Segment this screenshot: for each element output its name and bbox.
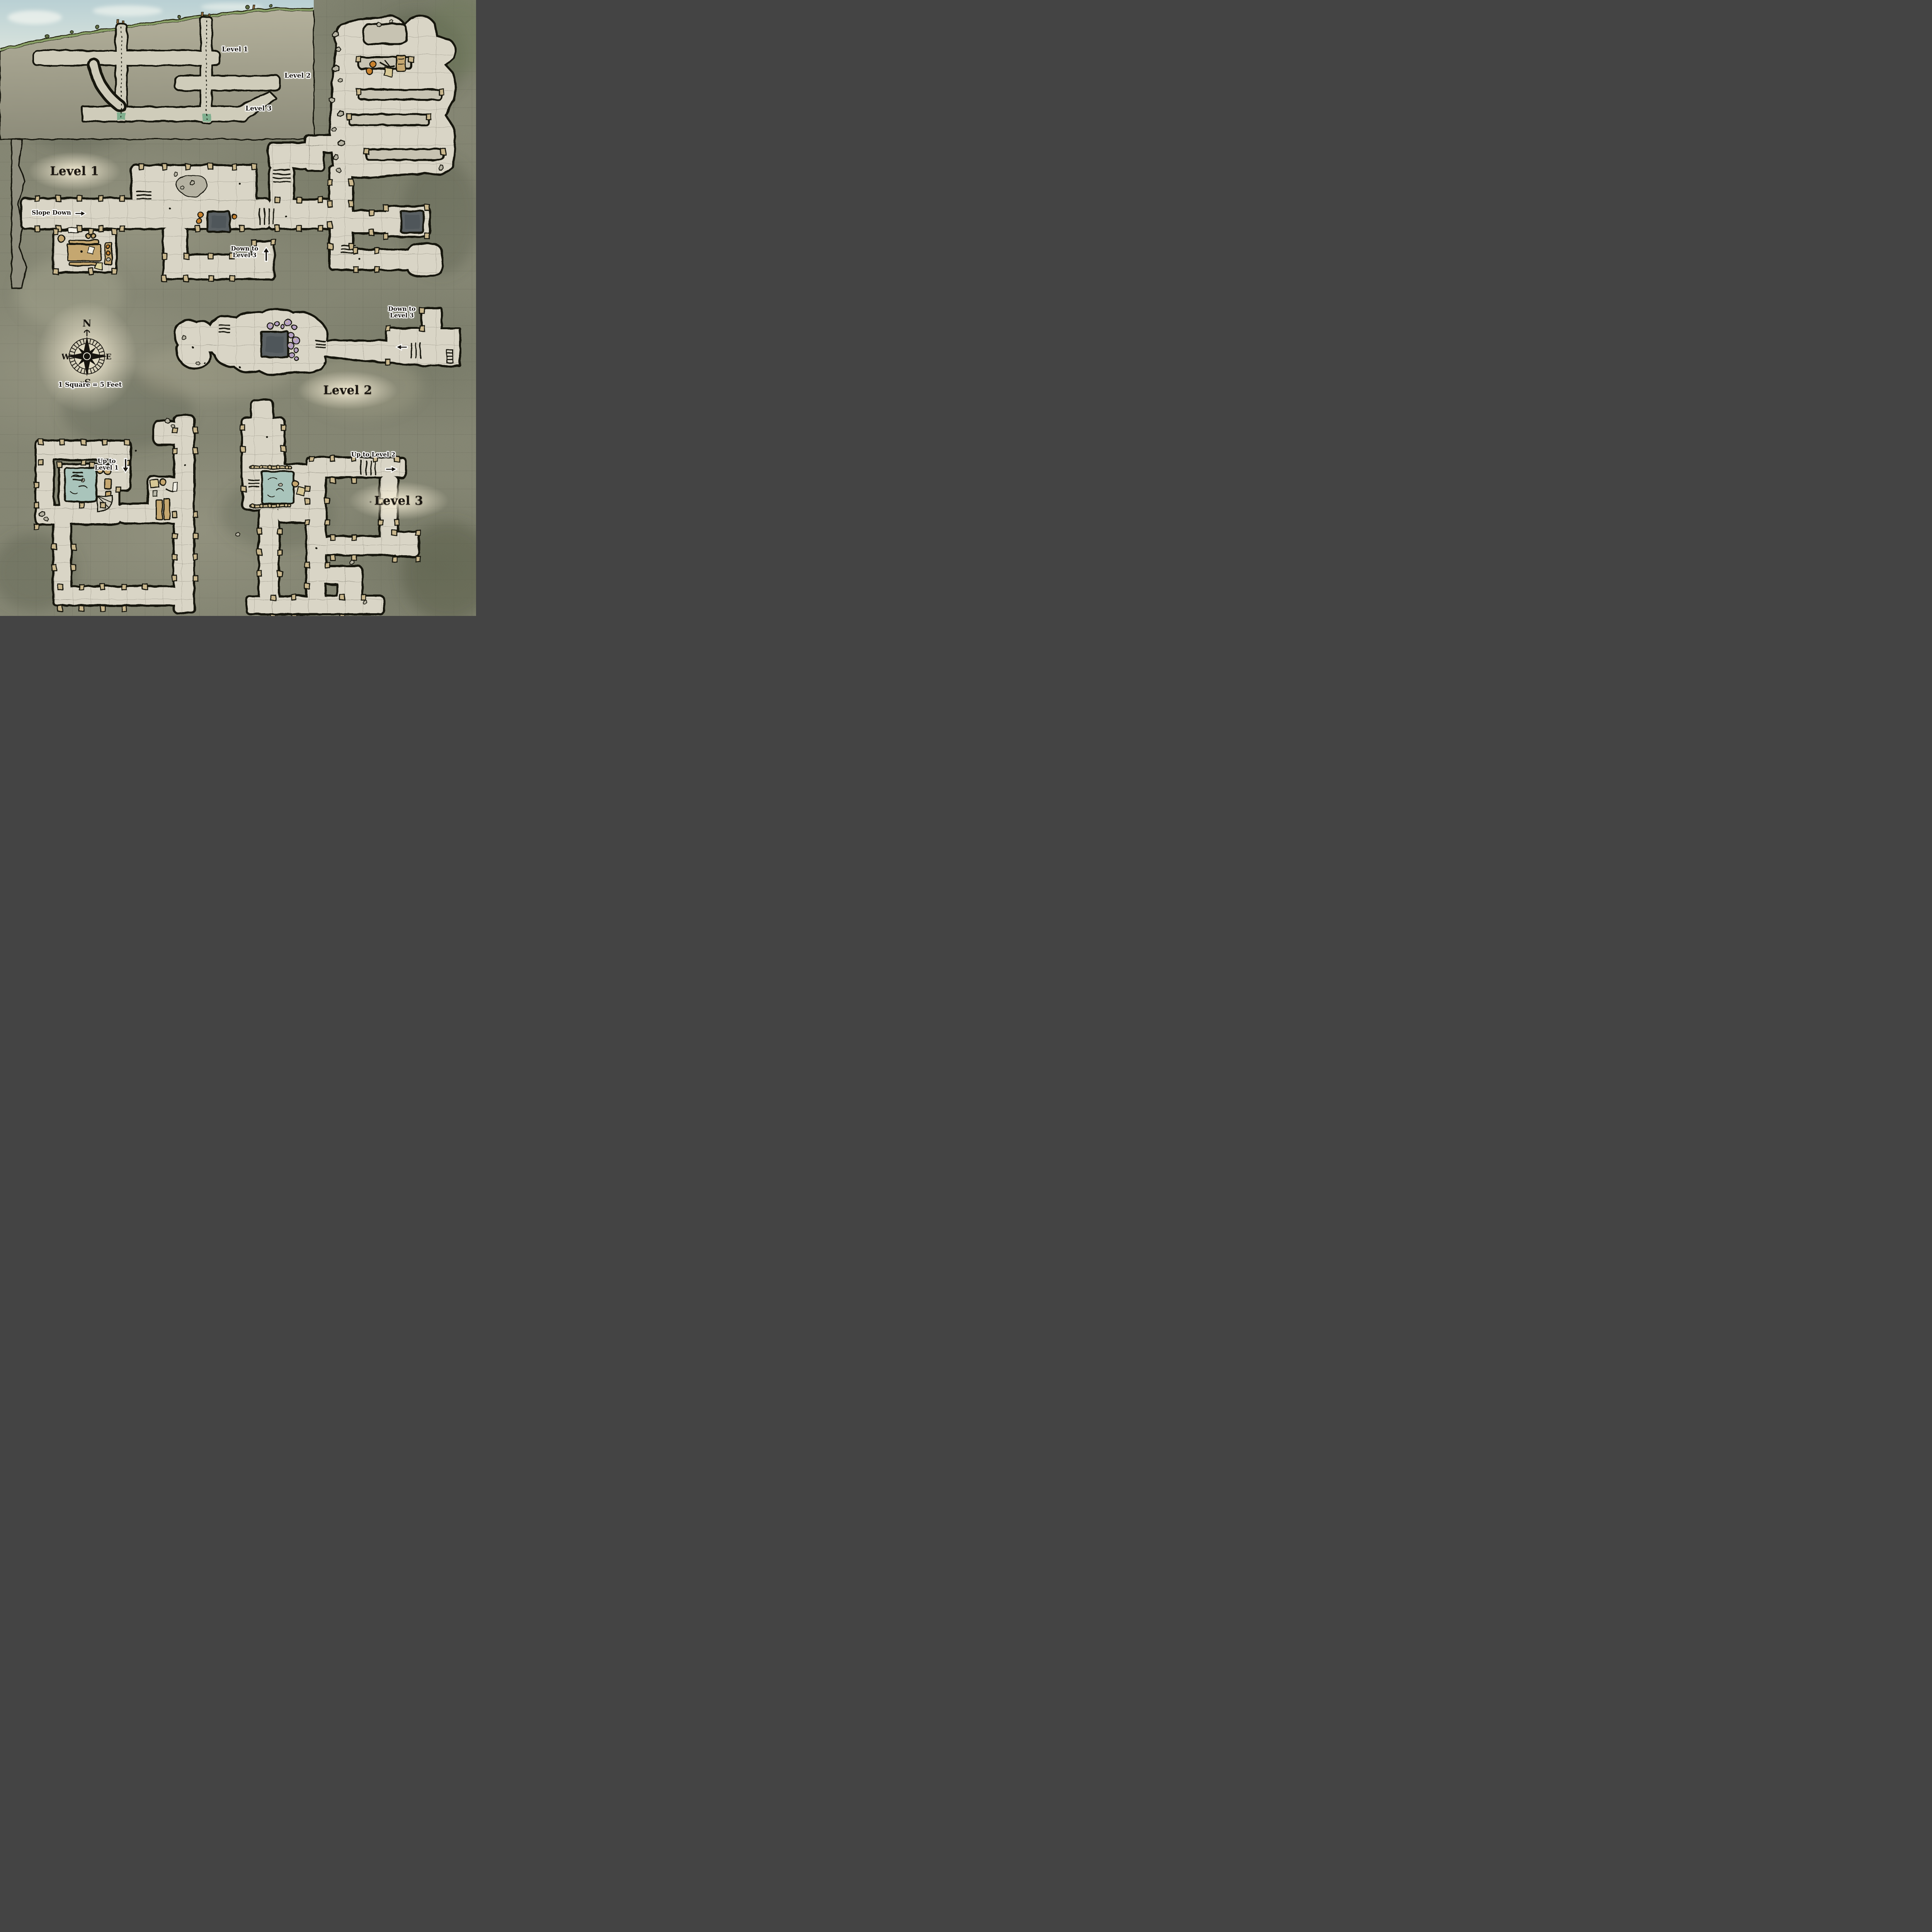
level3-title: Level 3	[374, 494, 423, 508]
level2-title: Level 2	[323, 383, 372, 397]
cross-section-view	[0, 0, 314, 139]
spool-icon	[198, 212, 203, 218]
cross-section-level3-label: Level 3	[245, 105, 272, 112]
crate-icon	[95, 262, 103, 270]
compass-east-label: E	[105, 352, 111, 361]
level1-title: Level 1	[50, 164, 99, 178]
up-to-level2-right-arrow-icon	[385, 465, 398, 473]
level3-up-to-level2-label: Up to Level 2	[351, 452, 395, 458]
up-to-level1-down-arrow-icon	[121, 458, 130, 473]
level2-down-to-level3-label: Down toLevel 3	[388, 306, 415, 318]
slope-down-right-arrow-icon	[74, 210, 87, 217]
level3-up-to-level1-label: Up toLevel 1	[95, 458, 119, 471]
compass-north-label: N	[82, 320, 92, 329]
spool-icon	[232, 214, 236, 219]
down-to-level3-left-arrow-icon	[395, 343, 408, 351]
mine-dungeon-map: N W E M S Level 1 Level 2 Level 3 Level …	[0, 0, 476, 616]
level1-down-to-level3-label: Down toLevel 3	[231, 245, 258, 258]
scale-note: 1 Square = 5 Feet	[58, 381, 122, 388]
cross-section-level1-label: Level 1	[222, 46, 248, 53]
spool-icon	[196, 218, 202, 224]
slope-down-label: Slope Down	[32, 210, 71, 216]
barrel-icon	[292, 481, 298, 487]
crate-icon	[384, 67, 393, 77]
shelf-icon	[105, 479, 111, 489]
barrel-icon	[58, 235, 65, 242]
compass-rose-icon: N W E M S	[62, 320, 112, 388]
compass-west-label: W	[62, 352, 70, 361]
door	[68, 228, 78, 232]
door	[173, 482, 177, 492]
crate-icon	[297, 487, 306, 496]
down-to-level3-up-arrow-icon	[262, 247, 270, 262]
table-icon	[68, 245, 101, 261]
cross-section-level2-label: Level 2	[284, 72, 311, 79]
workbench-icon	[164, 499, 170, 520]
basket-icon	[160, 479, 166, 485]
workbench-icon	[156, 500, 162, 519]
crate-icon	[150, 480, 159, 488]
